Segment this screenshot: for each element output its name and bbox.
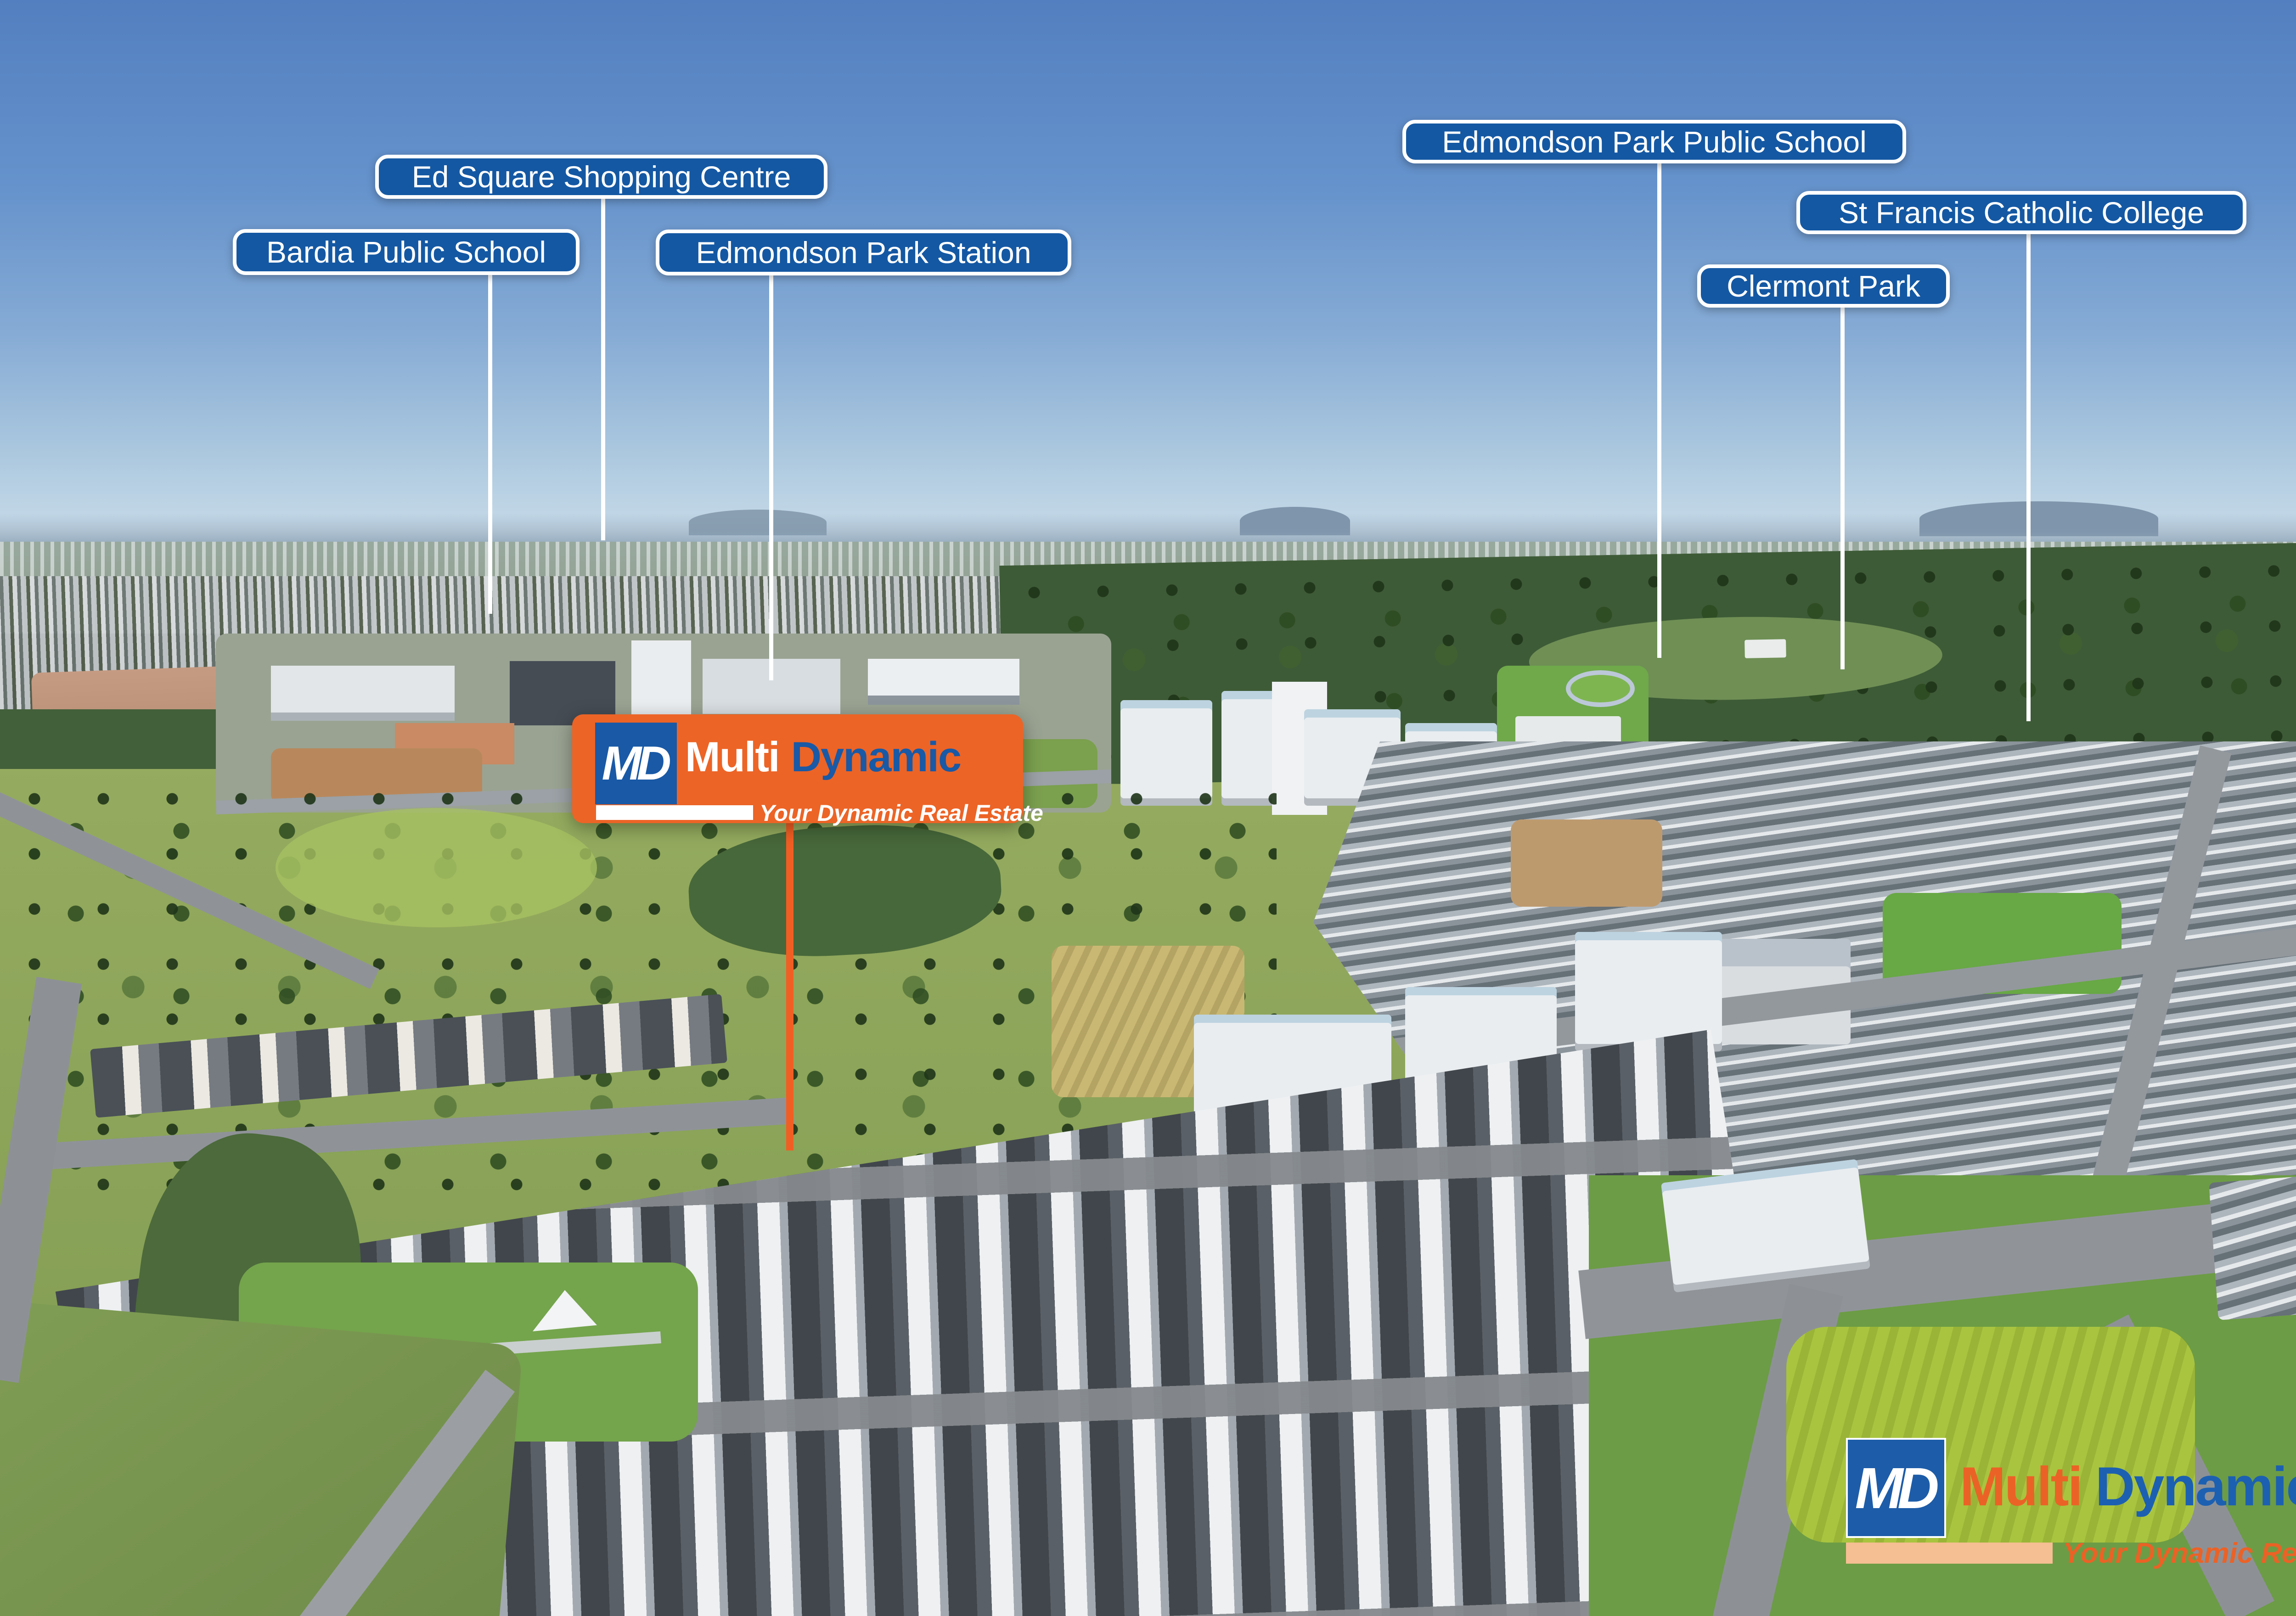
- light-grass-patch: [276, 808, 597, 927]
- leader-line-bardia: [488, 273, 492, 614]
- underline-bar: [596, 805, 753, 820]
- md-logo-icon: MD: [1846, 1438, 1946, 1538]
- callout-bardia-public-school: Bardia Public School: [233, 229, 580, 275]
- brand-tagline: Your Dynamic Real Estate: [760, 800, 1043, 826]
- callout-label: Bardia Public School: [266, 235, 546, 269]
- brand-word-multi: Multi: [1960, 1456, 2082, 1517]
- callout-st-francis-catholic-college: St Francis Catholic College: [1796, 191, 2246, 234]
- dirt-patch: [1511, 819, 1662, 907]
- leader-line-station: [769, 274, 773, 680]
- running-track: [1566, 670, 1635, 707]
- house-rooftops: [2209, 1168, 2296, 1320]
- callout-label: Ed Square Shopping Centre: [412, 159, 791, 194]
- leader-line-ed-square: [601, 197, 605, 540]
- leader-line-public-school: [1657, 162, 1661, 658]
- farm-house: [1745, 639, 1786, 658]
- md-logo-icon: MD: [595, 723, 677, 804]
- brand-watermark: MD MultiDynamic Your Dynamic Real Estate: [1846, 1435, 2296, 1568]
- aerial-marketing-image: Ed Square Shopping Centre Bardia Public …: [0, 0, 2296, 1616]
- brand-name: MultiDynamic: [1960, 1435, 2296, 1538]
- md-monogram: MD: [602, 736, 670, 791]
- brand-word-multi: Multi: [685, 734, 779, 780]
- callout-label: Edmondson Park Public School: [1442, 124, 1867, 159]
- brand-name: MultiDynamic: [685, 718, 961, 796]
- shade-sail: [533, 1290, 597, 1331]
- leader-line-st-francis: [2026, 233, 2031, 721]
- callout-label: St Francis Catholic College: [1839, 195, 2204, 230]
- brand-tagline: Your Dynamic Real Estate: [2063, 1537, 2296, 1570]
- leader-line-brand-badge: [786, 822, 793, 1150]
- callout-label: Edmondson Park Station: [696, 235, 1031, 270]
- underline-bar: [1846, 1543, 2053, 1564]
- callout-ed-square-shopping-centre: Ed Square Shopping Centre: [375, 155, 827, 199]
- callout-clermont-park: Clermont Park: [1697, 264, 1950, 308]
- road: [270, 1369, 515, 1616]
- brand-word-dynamic: Dynamic: [791, 734, 961, 780]
- leader-line-clermont: [1840, 307, 1845, 669]
- shopping-centre-building: [271, 666, 455, 721]
- brand-word-dynamic: Dynamic: [2095, 1456, 2296, 1517]
- brand-badge: MD MultiDynamic Your Dynamic Real Estate: [572, 714, 1023, 823]
- bushland: [0, 1299, 523, 1616]
- station-platform-roof: [868, 659, 1019, 696]
- callout-edmondson-park-station: Edmondson Park Station: [656, 230, 1071, 275]
- house-row: [90, 994, 727, 1118]
- md-monogram: MD: [1855, 1455, 1937, 1521]
- callout-edmondson-park-public-school: Edmondson Park Public School: [1402, 120, 1906, 163]
- callout-label: Clermont Park: [1727, 269, 1920, 303]
